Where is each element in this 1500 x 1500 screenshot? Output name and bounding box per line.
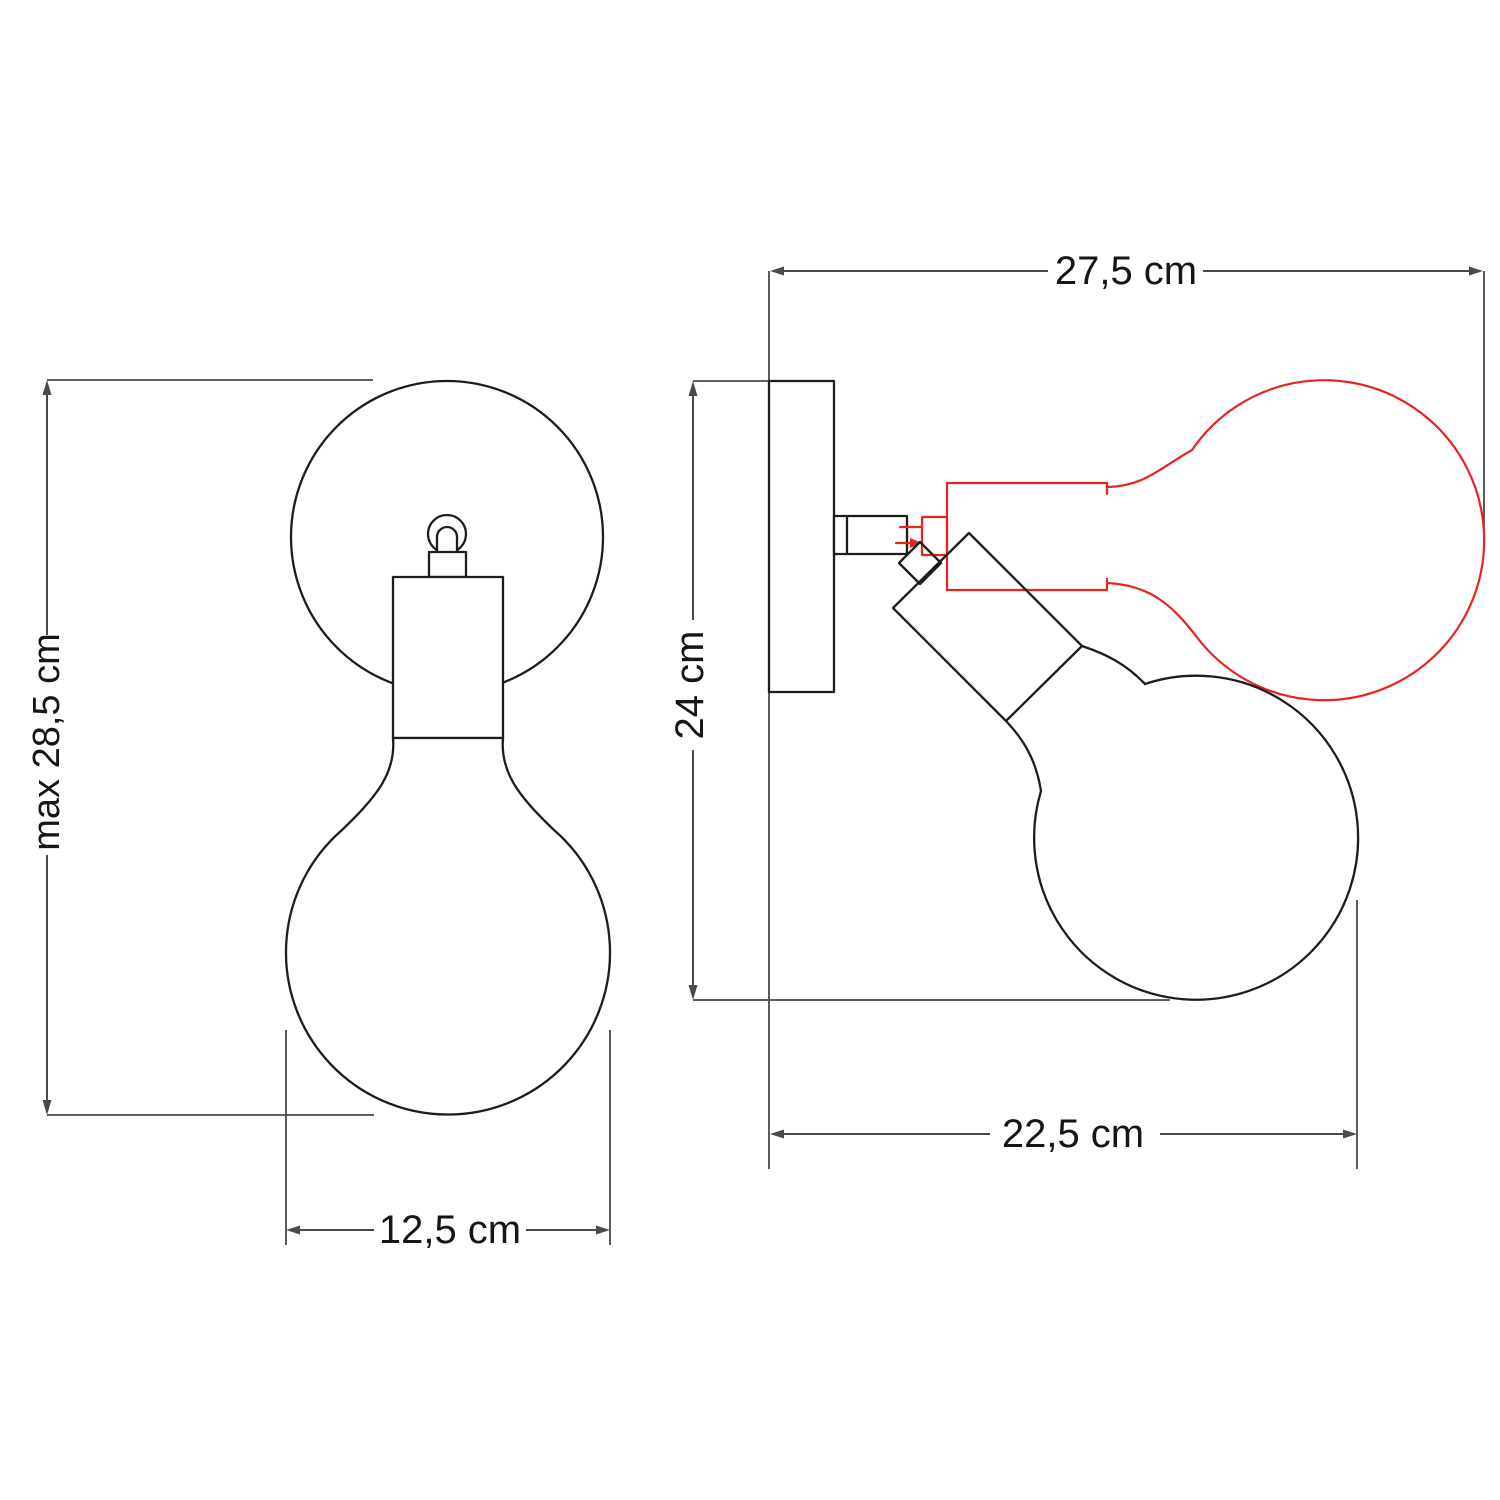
bulb-diameter-label: 12,5 cm [379, 1208, 521, 1252]
arrow-up-icon [689, 381, 698, 396]
dimension-diagram: max 28,5 cm 12,5 cm 27 [0, 0, 1500, 1500]
arrow-right-icon [1469, 267, 1483, 276]
arrow-left-icon [770, 1130, 784, 1139]
front-view: max 28,5 cm 12,5 cm [26, 380, 610, 1252]
side-height-dimension: 24 cm [668, 381, 1170, 1000]
globe-bulb-horizontal [1192, 380, 1484, 700]
hook-ring-inner [437, 527, 457, 552]
tilted-position-outline [893, 533, 1358, 1000]
height-label: 24 cm [668, 631, 712, 740]
max-height-label: max 28,5 cm [26, 633, 68, 851]
bulb-neck-bottom-horizontal [1107, 583, 1196, 636]
bulb-neck-top-tilted [1082, 646, 1145, 684]
projection-label: 27,5 cm [1055, 249, 1197, 293]
socket-collar-front [429, 552, 466, 577]
arrow-left-icon [286, 1226, 300, 1235]
diagram-svg: max 28,5 cm 12,5 cm 27 [0, 0, 1500, 1500]
arrow-left-icon [770, 267, 784, 276]
bulb-neck-bottom-tilted [1006, 721, 1041, 791]
side-view: 27,5 cm 24 cm [668, 249, 1484, 1169]
globe-bulb-front [286, 738, 610, 1115]
arrow-down-icon [43, 1100, 52, 1115]
alternate-position-outline [896, 380, 1484, 700]
socket-body-front [393, 577, 503, 738]
side-tilted-projection-dimension: 22,5 cm [770, 900, 1357, 1169]
wall-plate-side [769, 381, 834, 692]
tilted-projection-label: 22,5 cm [1002, 1112, 1144, 1156]
arrow-right-icon [1343, 1130, 1357, 1139]
arrow-up-icon [43, 380, 52, 395]
side-projection-dimension: 27,5 cm [770, 249, 1484, 540]
arrow-down-icon [689, 985, 698, 1000]
socket-tilted [893, 533, 1082, 721]
bulb-neck-top-horizontal [1107, 450, 1192, 487]
mounting-arm [834, 516, 907, 554]
globe-bulb-tilted [1034, 676, 1358, 1000]
arrow-right-icon [596, 1226, 610, 1235]
